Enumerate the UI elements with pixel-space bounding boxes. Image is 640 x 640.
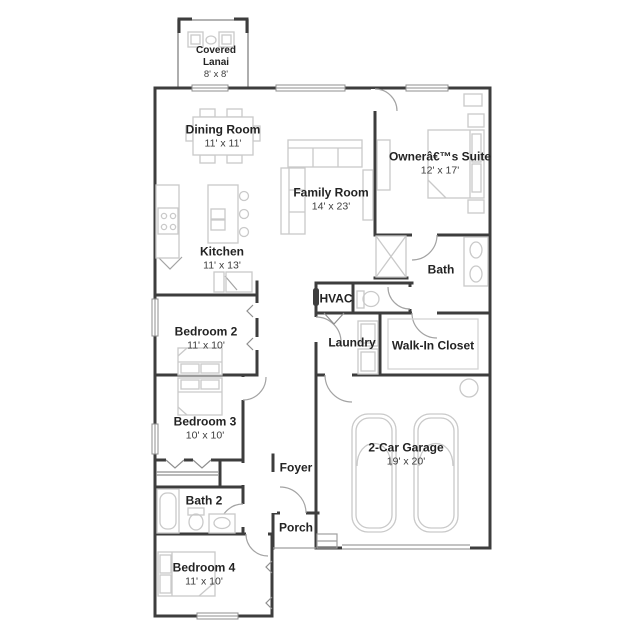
room-name: Covered Lanai: [187, 45, 245, 69]
floorplan-canvas: [0, 0, 640, 640]
room-name: HVAC: [319, 292, 352, 307]
room-label-bedroom-4: Bedroom 4 11' x 10': [173, 560, 236, 587]
bedroom2-bed: [178, 348, 222, 375]
room-label-bedroom-2: Bedroom 2 11' x 10': [175, 324, 238, 351]
room-label-bedroom-3: Bedroom 3 10' x 10': [174, 414, 237, 441]
bedroom3-bed: [178, 378, 222, 415]
room-label-porch: Porch: [279, 521, 313, 536]
room-dims: 14' x 23': [293, 200, 368, 213]
room-name: Ownerâ€™s Suite: [389, 149, 491, 164]
room-label-kitchen: Kitchen 11' x 13': [200, 244, 244, 271]
room-name: Bath 2: [186, 494, 223, 509]
porch-step: [273, 534, 337, 548]
lanai-corner-brackets: [179, 19, 247, 33]
room-dims: 11' x 10': [173, 575, 236, 588]
room-label-walk-in-closet: Walk-In Closet: [392, 339, 474, 354]
room-name: Bedroom 3: [174, 414, 237, 429]
room-name: Laundry: [328, 336, 375, 351]
room-name: Family Room: [293, 185, 368, 200]
room-label-family-room: Family Room 14' x 23': [293, 185, 368, 212]
room-name: Porch: [279, 521, 313, 536]
room-dims: 11' x 11': [186, 137, 261, 150]
room-name: Bath: [428, 263, 455, 278]
room-name: Walk-In Closet: [392, 339, 474, 354]
kitchen-set: [156, 185, 252, 292]
room-label-bath: Bath: [428, 263, 455, 278]
floor-plan: Covered Lanai 8' x 8' Dining Room 11' x …: [0, 0, 640, 640]
room-name: Dining Room: [186, 122, 261, 137]
owner-bath-set: [357, 236, 488, 308]
room-dims: 11' x 10': [175, 339, 238, 352]
room-label-hvac: HVAC: [319, 292, 352, 307]
room-dims: 10' x 10': [174, 429, 237, 442]
room-label-bath-2: Bath 2: [186, 494, 223, 509]
room-dims: 8' x 8': [187, 69, 245, 81]
hvac-door-icon: [313, 288, 319, 306]
room-label-foyer: Foyer: [280, 461, 313, 476]
room-dims: 12' x 17': [389, 164, 491, 177]
room-dims: 11' x 13': [200, 259, 244, 272]
room-name: Kitchen: [200, 244, 244, 259]
room-label-garage: 2-Car Garage 19' x 20': [368, 440, 443, 467]
room-label-covered-lanai: Covered Lanai 8' x 8': [187, 45, 245, 81]
room-label-dining-room: Dining Room 11' x 11': [186, 122, 261, 149]
room-label-owners-suite: Ownerâ€™s Suite 12' x 17': [389, 149, 491, 176]
room-label-laundry: Laundry: [328, 336, 375, 351]
room-name: 2-Car Garage: [368, 440, 443, 455]
room-dims: 19' x 20': [368, 455, 443, 468]
room-name: Foyer: [280, 461, 313, 476]
room-name: Bedroom 2: [175, 324, 238, 339]
room-name: Bedroom 4: [173, 560, 236, 575]
